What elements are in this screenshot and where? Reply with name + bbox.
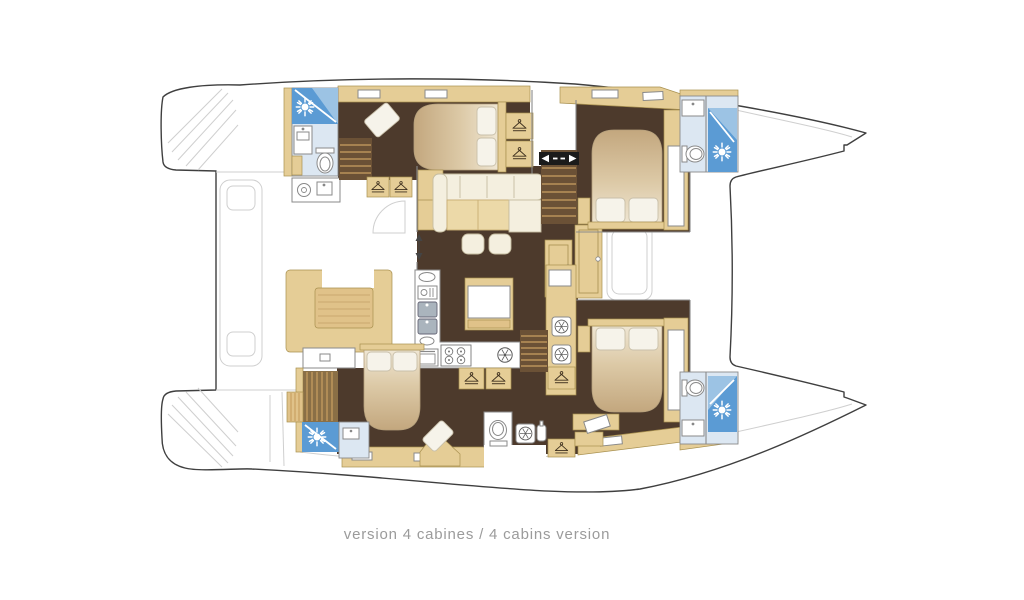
cockpit-sink-unit (303, 348, 355, 368)
toilet-port-forward (682, 146, 704, 162)
toilet-port-aft (316, 148, 334, 173)
catamaran-floor-plan-page: version 4 cabines / 4 cabins version (0, 0, 1024, 600)
salon-ottoman (462, 234, 484, 254)
wardrobe-locker (548, 367, 575, 389)
utility-column (546, 265, 576, 395)
porthole-icon (555, 348, 568, 361)
wardrobe-locker (486, 368, 511, 389)
floor-plan-drawing (0, 0, 1024, 600)
cockpit-wet-bar (292, 178, 340, 202)
sink-starboard-aft (339, 422, 369, 458)
caption: version 4 cabines / 4 cabins version (344, 526, 610, 543)
galley-appliance (418, 286, 437, 299)
galley-island (465, 278, 513, 330)
port-aft-head (284, 88, 338, 176)
companionway-stairs-starboard (520, 330, 548, 372)
door-panel (575, 225, 602, 298)
cockpit-table (315, 288, 373, 328)
sun-shower-icon (713, 401, 730, 418)
galley (415, 270, 520, 368)
sink-port-forward (682, 100, 704, 116)
port-forward-head (680, 90, 738, 172)
sun-shower-icon (713, 143, 730, 160)
salon-ottoman (489, 234, 511, 254)
wardrobe-locker (367, 177, 389, 197)
porthole-icon (555, 320, 568, 333)
companionway-stairs-port-aft (339, 138, 372, 180)
sun-shower-icon (296, 98, 313, 115)
wardrobe-locker (390, 177, 412, 197)
sun-shower-icon (308, 428, 325, 445)
companionway-arrows-icon (539, 152, 579, 165)
toilet-day-head (490, 421, 508, 447)
wardrobe-locker (459, 368, 484, 389)
wardrobe-locker (548, 439, 575, 457)
stove-icon (441, 345, 471, 366)
toilet-starboard-forward (682, 380, 704, 396)
starboard-forward-head (680, 372, 738, 444)
round-sink-icon (498, 348, 512, 362)
porthole-icon (519, 427, 532, 440)
sink-starboard-forward (682, 420, 704, 436)
salon-sofa (433, 174, 543, 232)
cockpit-bench-and-table (286, 269, 392, 352)
